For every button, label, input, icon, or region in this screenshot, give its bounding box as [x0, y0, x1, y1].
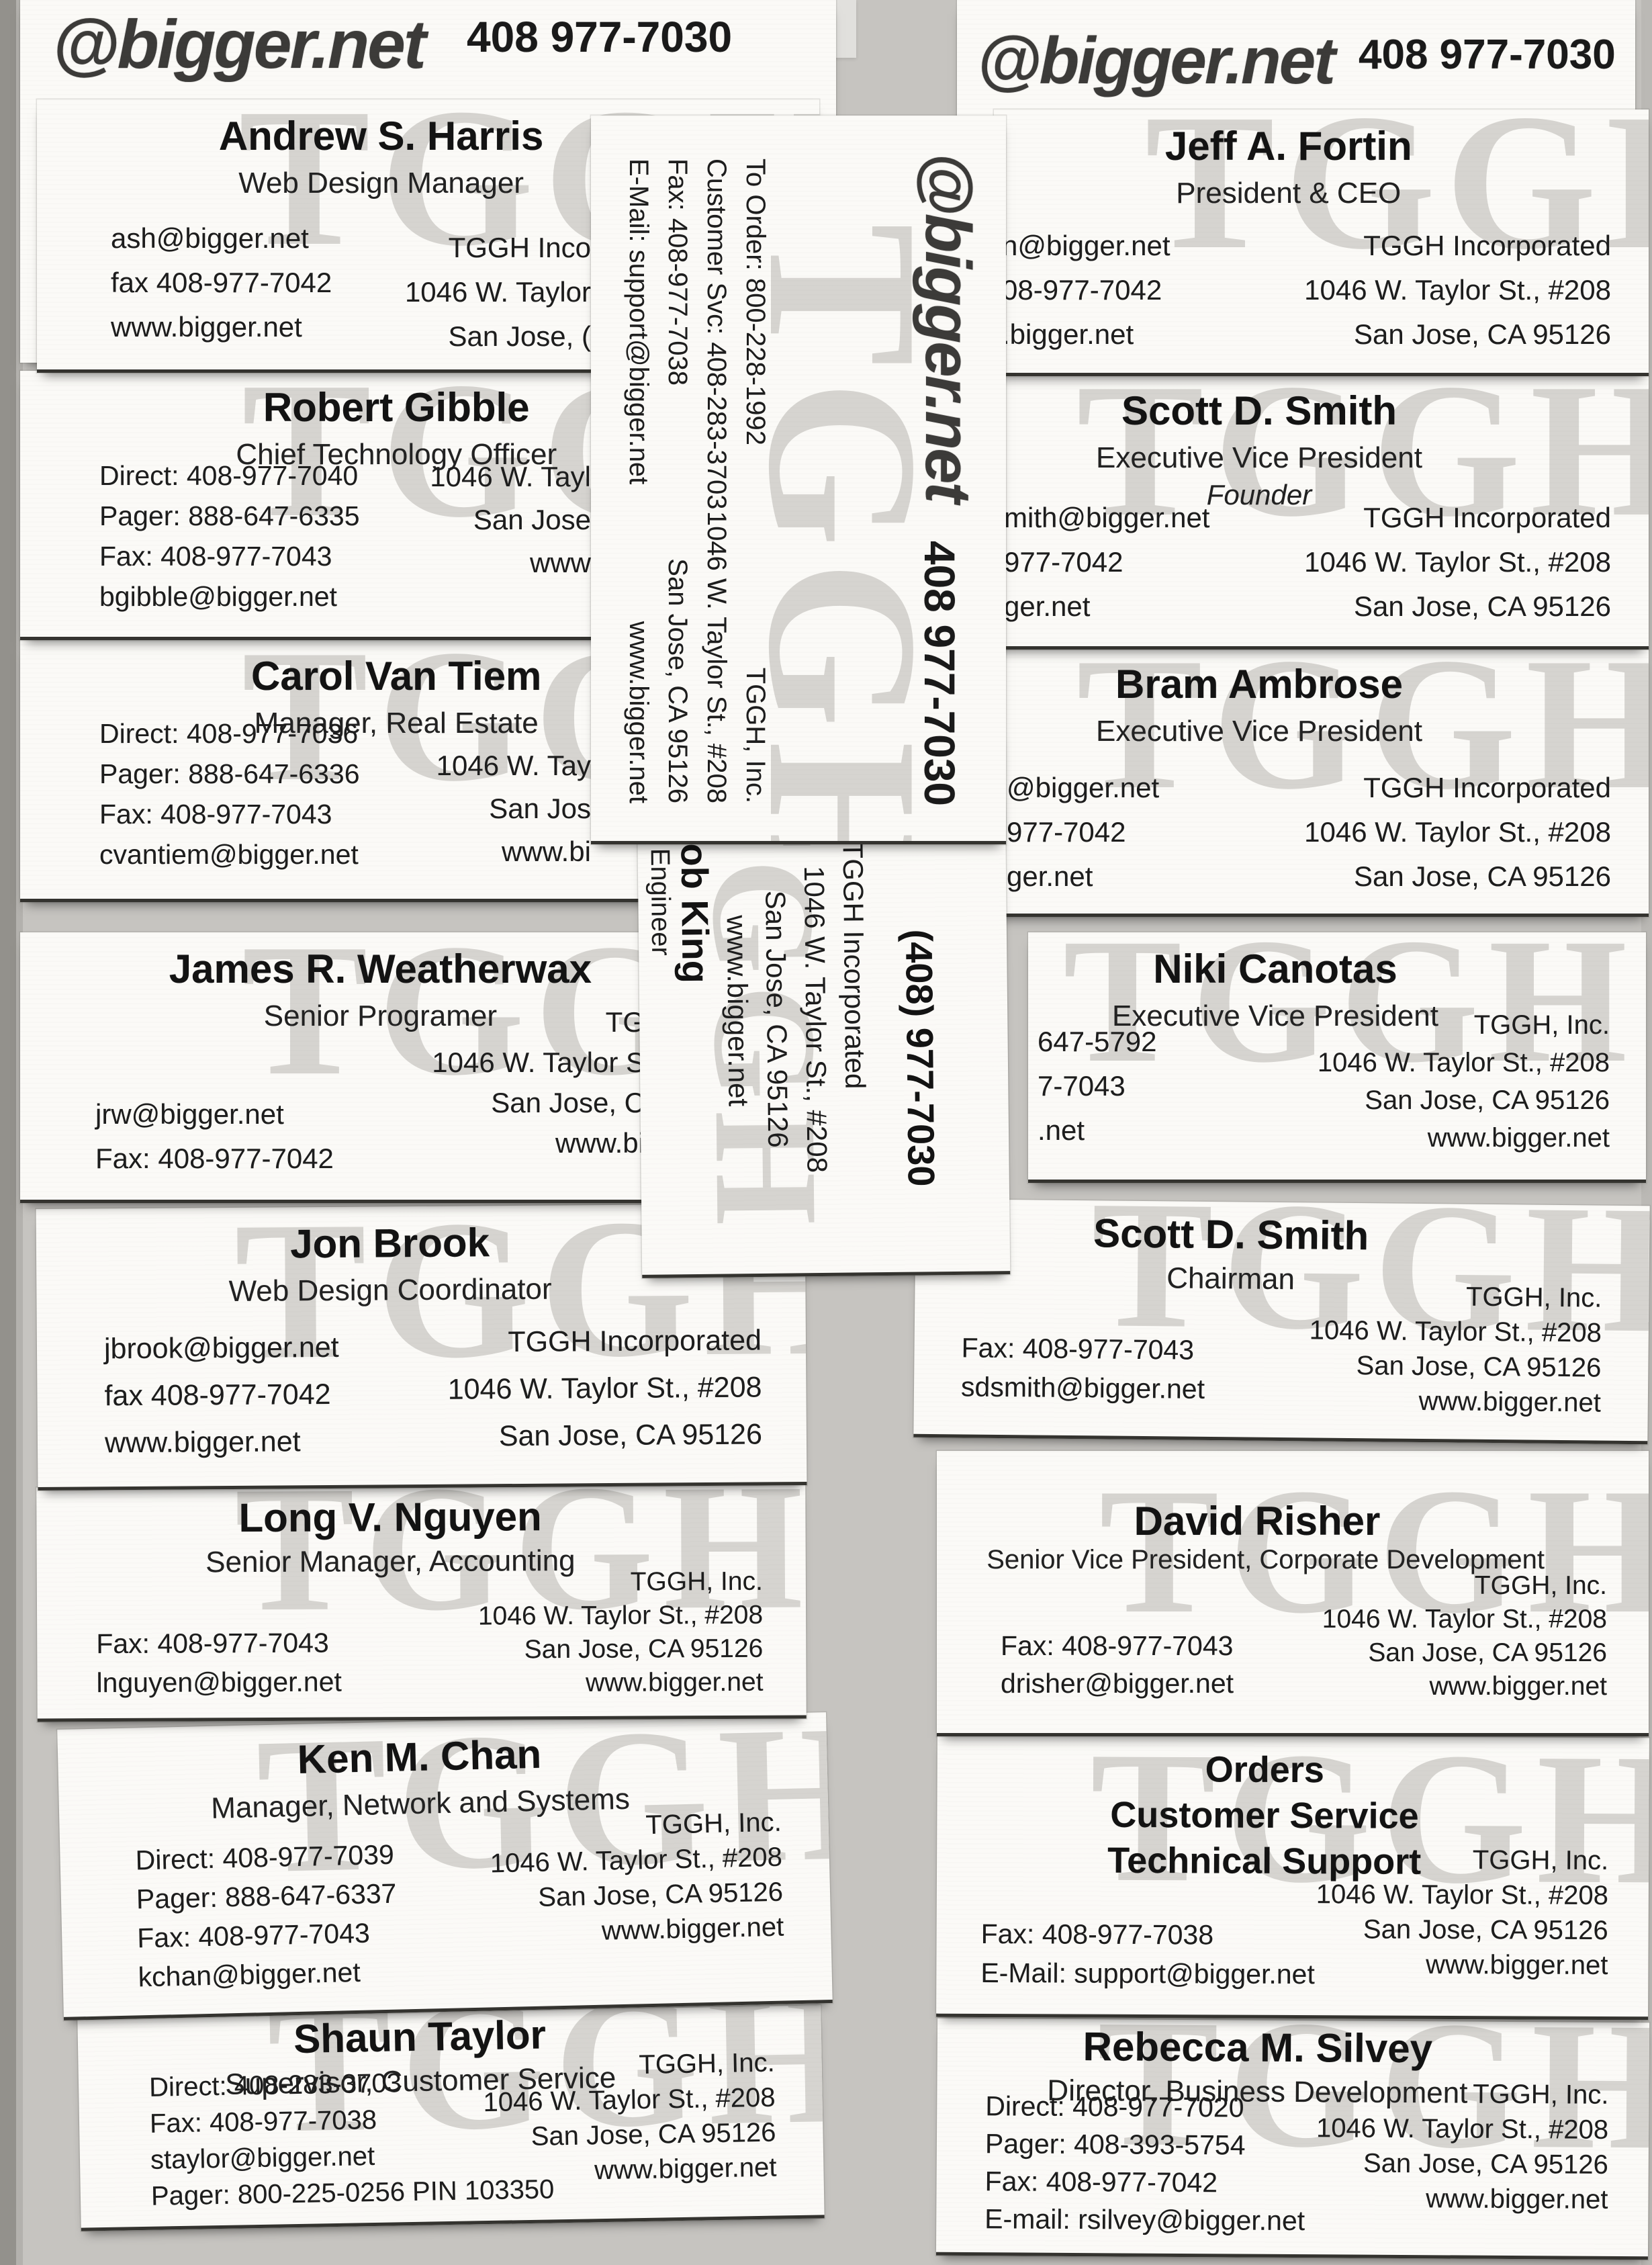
- bigger-net-logo: @bigger.net: [911, 152, 984, 501]
- address-line: TGGH Incorporated: [1304, 766, 1611, 810]
- address-lines: 1046 W. TaylSan Josewww: [430, 455, 591, 584]
- address-line: San Jose, CA 95126: [1309, 1347, 1602, 1385]
- address-line: San Jose, CA 95126: [478, 1632, 763, 1667]
- address-line: San Jose, CA 95126: [484, 2115, 776, 2156]
- contact-line: @bigger.net: [1007, 766, 1159, 810]
- address-line: 1046 W. Taylor St., #208: [1316, 1877, 1608, 1913]
- address-line: 1046 W. Taylor St., #208: [447, 1364, 762, 1413]
- address-lines: TGGH, Inc.1046 W. Taylor St., #208San Jo…: [489, 1805, 784, 1951]
- contact-lines: mith@bigger.net977-7042ger.net: [1004, 496, 1209, 629]
- contact-line: Fax: 408-977-7043: [99, 794, 360, 834]
- address-line: TGGH Incorporated: [447, 1317, 762, 1366]
- contact-line: E-Mail: support@bigger.net: [619, 159, 658, 510]
- card-title: Web Design Coordinator: [98, 1272, 683, 1309]
- address-line: TGGH, Inc.: [478, 1565, 763, 1600]
- contact-line: .bigger.net: [1002, 312, 1170, 357]
- contact-line: Direct: 408-977-7036: [99, 713, 360, 754]
- address-lines: TGGH, Inc.1046 W. Taylor St., #208San Jo…: [1316, 2076, 1608, 2217]
- card-name-line: Orders: [994, 1746, 1535, 1794]
- card-name: Jeff A. Fortin: [1040, 123, 1537, 169]
- contact-line: Customer Svc: 408-283-3703: [697, 159, 736, 510]
- address-line: 1046 W. Taylor St., #208: [1304, 810, 1611, 854]
- business-card-orders: TGGHOrdersCustomer ServiceTechnical Supp…: [936, 1735, 1649, 2020]
- rotated-card-inner: TGGH@bigger.net408 977-7030To Order: 800…: [591, 116, 1006, 841]
- contact-line: cvantiem@bigger.net: [99, 834, 360, 875]
- address-line: TGGH Inco: [405, 226, 591, 270]
- contact-line: Direct: 408-977-7040: [99, 455, 360, 496]
- contact-line: E-mail: rsilvey@bigger.net: [984, 2200, 1305, 2239]
- address-line: TGGH, Inc.: [736, 511, 775, 803]
- address-lines: TGGH Incorporated1046 W. Taylor St., #20…: [1304, 766, 1611, 899]
- address-lines: TGGH, Inc.1046 W. Taylor St., #208San Jo…: [482, 2045, 777, 2190]
- address-line: www: [430, 541, 591, 584]
- business-card-ambrose: TGGHBram AmbroseExecutive Vice President…: [977, 648, 1649, 917]
- card-name: Long V. Nguyen: [98, 1493, 682, 1542]
- contact-line: Pager: 408-393-5754: [985, 2125, 1305, 2164]
- card-title: Web Design Manager: [84, 167, 678, 200]
- contact-line: E-Mail: support@bigger.net: [980, 1953, 1315, 1994]
- contact-lines: ash@bigger.netfax 408-977-7042www.bigger…: [111, 216, 332, 349]
- address-line: TGGH, Inc.: [1322, 1569, 1607, 1603]
- business-card-canotas: TGGHNiki CanotasExecutive Vice President…: [1028, 932, 1646, 1183]
- address-lines: TGGH, Inc.1046 W. Taylor St., #208San Jo…: [1322, 1569, 1607, 1703]
- address-line: 1046 W. Taylor St., #208: [1316, 2111, 1608, 2147]
- card-name: Jon Brook: [97, 1218, 682, 1268]
- contact-lines: Direct: 408-977-7036Pager: 888-647-6336F…: [99, 713, 360, 875]
- address-line: TGGH, Inc.: [482, 2045, 775, 2086]
- card-name: Rebecca M. Silvey: [987, 2023, 1528, 2072]
- card-name: Scott D. Smith: [1004, 388, 1514, 434]
- address-line: San Jose, CA 95126: [759, 890, 794, 1147]
- business-card-risher: TGGHDavid RisherSenior Vice President, C…: [937, 1451, 1649, 1736]
- address-lines: TGGH Inco1046 W. TaylorSan Jose, (: [405, 226, 591, 359]
- address-line: www.bi: [437, 830, 591, 873]
- address-lines: TGGH, Inc.1046 W. Taylor St., #208San Jo…: [1309, 1278, 1602, 1420]
- address-line: 1046 W. Taylor St., #208: [1322, 1603, 1607, 1636]
- address-line: www.bi: [432, 1123, 645, 1163]
- bigger-net-logo: @bigger.net: [977, 23, 1334, 99]
- address-line: 1046 W. Taylor St., #208: [483, 2080, 776, 2121]
- contact-line: fax 408-977-7042: [111, 261, 332, 305]
- contact-lines: @bigger.net977-7042ger.net: [1007, 766, 1159, 899]
- card-phone: (408) 977-7030: [897, 929, 944, 1187]
- rotated-card-order-info: TGGH@bigger.net408 977-7030To Order: 800…: [591, 116, 1006, 844]
- contact-line: lnguyen@bigger.net: [96, 1662, 342, 1703]
- contact-line: 7-7043: [1038, 1064, 1157, 1108]
- contact-line: mith@bigger.net: [1004, 496, 1209, 540]
- business-card-smith_chair: TGGHScott D. SmithChairmanFax: 408-977-7…: [913, 1199, 1649, 1444]
- contact-lines: n@bigger.net08-977-7042.bigger.net: [1002, 224, 1170, 357]
- address-line: TGGH, Inc.: [1310, 1278, 1602, 1315]
- contact-line: Fax: 408-977-7043: [961, 1328, 1205, 1369]
- address-line: TG: [432, 1002, 645, 1042]
- contact-line: kchan@bigger.net: [138, 1952, 399, 1997]
- address-lines: TGGH, Inc.1046 W. Taylor St., #208San Jo…: [1318, 1006, 1610, 1157]
- business-card-staylor: TGGHShaun TaylorSupervisor, Customer Ser…: [77, 2005, 824, 2231]
- address-line: 1046 W. Taylor St., #208: [798, 866, 833, 1173]
- address-line: San Jose, CA 95126: [658, 511, 697, 803]
- address-line: www.bigger.net: [721, 915, 755, 1106]
- business-card-silvey: TGGHRebecca M. SilveyDirector, Business …: [936, 2018, 1649, 2260]
- address-line: www.bigger.net: [1322, 1670, 1607, 1703]
- address-line: 1046 W. Tay: [437, 744, 591, 787]
- address-line: www.bigger.net: [1316, 1947, 1608, 1983]
- contact-lines: Direct: 408-977-7020Pager: 408-393-5754F…: [984, 2087, 1305, 2239]
- card-name: Bram Ambrose: [1004, 661, 1514, 707]
- card-name-line: Customer Service: [994, 1791, 1535, 1840]
- address-lines: TGGH Incorporated1046 W. Taylor St., #20…: [1304, 224, 1611, 357]
- scanned-page: @bigger.net408 977-7030@bigger.net408 97…: [0, 0, 1652, 2265]
- contact-line: Fax: 408-977-7043: [99, 536, 360, 576]
- address-line: San Jose, CA 95126: [1316, 1912, 1608, 1948]
- contact-line: Fax: 408-977-7038: [981, 1914, 1316, 1955]
- contact-line: n@bigger.net: [1002, 224, 1170, 268]
- card-name: Scott D. Smith: [952, 1208, 1510, 1260]
- header-phone: 408 977-7030: [915, 541, 964, 806]
- address-lines: 1046 W. TaySan Joswww.bi: [437, 744, 591, 873]
- address-line: 1046 W. Taylor St., #208: [697, 511, 736, 803]
- contact-line: fax 408-977-7042: [104, 1371, 339, 1419]
- card-title: Executive Vice President: [1004, 715, 1514, 748]
- contact-line: 977-7042: [1007, 810, 1159, 854]
- address-line: TGGH, Inc.: [1316, 2076, 1608, 2113]
- contact-lines: Direct: 408-977-7039Pager: 888-647-6337F…: [135, 1835, 399, 1997]
- contact-lines: Fax: 408-977-7043drisher@bigger.net: [1001, 1627, 1234, 1702]
- contact-line: www.bigger.net: [111, 305, 332, 349]
- contact-line: ger.net: [1004, 584, 1209, 629]
- address-line: San Jose: [430, 498, 591, 541]
- address-line: TGGH, Inc.: [1316, 1842, 1608, 1878]
- address-line: TGGH, Inc.: [1318, 1006, 1610, 1044]
- card-name: Andrew S. Harris: [84, 113, 678, 159]
- address-line: www.bigger.net: [1318, 1119, 1610, 1157]
- address-line: 1046 W. Tayl: [430, 455, 591, 498]
- contact-lines: Fax: 408-977-7043lnguyen@bigger.net: [96, 1624, 342, 1703]
- contact-line: sdsmith@bigger.net: [961, 1367, 1205, 1408]
- address-line: San Jose, CA 95126: [1304, 854, 1611, 899]
- header-phone: 408 977-7030: [1359, 31, 1616, 79]
- address-line: 1046 W. Taylor St., #208: [1310, 1313, 1602, 1350]
- contact-line: jbrook@bigger.net: [104, 1324, 339, 1372]
- contact-line: bgibble@bigger.net: [99, 576, 360, 617]
- contact-line: www.bigger.net: [105, 1418, 340, 1466]
- contact-lines: 647-57927-7043.net: [1038, 1020, 1157, 1153]
- address-lines: TGGH Incorporated1046 W. Taylor St., #20…: [447, 1317, 762, 1460]
- contact-line: ash@bigger.net: [111, 216, 332, 261]
- contact-line: jrw@bigger.net: [95, 1092, 334, 1137]
- business-card-smith_evp: TGGHScott D. SmithExecutive Vice Preside…: [977, 374, 1649, 650]
- contact-lines: jbrook@bigger.netfax 408-977-7042www.big…: [104, 1324, 340, 1466]
- address-line: 1046 W. Taylor St., #208: [1304, 268, 1611, 312]
- address-line: San Jose, (: [405, 314, 591, 359]
- address-line: 1046 W. Taylor St., #208: [1304, 540, 1611, 584]
- address-line: www.bigger.net: [492, 1910, 784, 1951]
- contact-line: Fax: 408-977-7038: [658, 159, 697, 510]
- contact-line: Fax: 408-977-7043: [96, 1624, 342, 1664]
- address-lines: TG1046 W. Taylor SSan Jose, Cwww.bi: [432, 1002, 645, 1163]
- contact-line: 977-7042: [1004, 540, 1209, 584]
- address-line: www.bigger.net: [1316, 2180, 1608, 2217]
- contact-line: 647-5792: [1038, 1020, 1157, 1064]
- address-line: San Jos: [437, 787, 591, 830]
- contact-line: Direct: 408-977-7039: [135, 1835, 396, 1880]
- contact-line: Fax: 408-977-7043: [1001, 1627, 1234, 1664]
- card-name: Niki Canotas: [1040, 946, 1510, 992]
- bigger-net-logo: @bigger.net: [52, 5, 424, 84]
- address-line: www.bigger.net: [478, 1666, 763, 1701]
- address-line: www.bigger.net: [619, 511, 658, 803]
- address-line: San Jose, CA 95126: [1304, 584, 1611, 629]
- business-card-nguyen: TGGHLong V. NguyenSenior Manager, Accoun…: [36, 1484, 807, 1722]
- address-line: TGGH Incorporated: [836, 841, 871, 1089]
- address-lines: TGGH, Inc.1046 W. Taylor St., #208San Jo…: [478, 1565, 764, 1701]
- contact-line: .net: [1038, 1108, 1157, 1153]
- card-title: President & CEO: [1040, 177, 1537, 210]
- address-line: San Jose, CA 95126: [1318, 1081, 1610, 1119]
- address-line: 1046 W. Taylor St., #208: [478, 1599, 763, 1634]
- contact-line: Direct: 408-977-7020: [985, 2087, 1305, 2127]
- header-phone: 408 977-7030: [467, 12, 732, 62]
- address-line: TGGH Incorporated: [1304, 496, 1611, 540]
- address-line: San Jose, CA 95126: [1322, 1636, 1607, 1670]
- address-line: San Jose, CA 95126: [448, 1411, 762, 1460]
- address-lines: TGGH, Inc.1046 W. Taylor St., #208San Jo…: [1316, 1842, 1608, 1983]
- contact-line: Pager: 888-647-6336: [99, 754, 360, 794]
- contact-lines: jrw@bigger.netFax: 408-977-7042: [95, 1092, 334, 1181]
- card-name: David Risher: [986, 1498, 1528, 1544]
- contact-line: Fax: 408-977-7042: [984, 2162, 1305, 2202]
- business-card-fortin: TGGHJeff A. FortinPresident & CEOn@bigge…: [994, 109, 1649, 376]
- business-card-chan: TGGHKen M. ChanManager, Network and Syst…: [57, 1712, 833, 2020]
- address-line: www.bigger.net: [484, 2150, 777, 2190]
- address-line: www.bigger.net: [1309, 1382, 1602, 1420]
- card-name: James R. Weatherwax: [76, 946, 684, 992]
- contact-lines: Direct: 408-977-7040Pager: 888-647-6335F…: [99, 455, 360, 617]
- address-line: San Jose, CA 95126: [1304, 312, 1611, 357]
- contact-line: 08-977-7042: [1002, 268, 1170, 312]
- address-lines: TGGH, Inc.1046 W. Taylor St., #208San Jo…: [619, 511, 775, 803]
- address-line: San Jose, CA 95126: [1316, 2145, 1608, 2182]
- scanner-edge-left: [0, 0, 16, 2265]
- contact-lines: Fax: 408-977-7043sdsmith@bigger.net: [961, 1328, 1205, 1408]
- address-line: 1046 W. Taylor: [405, 270, 591, 314]
- address-line: 1046 W. Taylor St., #208: [1318, 1044, 1610, 1081]
- contact-line: drisher@bigger.net: [1001, 1664, 1234, 1702]
- contact-lines: To Order: 800-228-1992Customer Svc: 408-…: [619, 159, 775, 510]
- address-line: 1046 W. Taylor S: [432, 1042, 645, 1083]
- address-lines: TGGH Incorporated1046 W. Taylor St., #20…: [1304, 496, 1611, 629]
- card-title: Executive Vice President: [1004, 441, 1514, 475]
- address-line: San Jose, C: [432, 1083, 645, 1123]
- contact-line: Pager: 888-647-6337: [136, 1874, 397, 1919]
- contact-line: Fax: 408-977-7043: [137, 1913, 398, 1958]
- contact-line: ger.net: [1007, 854, 1159, 899]
- address-line: TGGH Incorporated: [1304, 224, 1611, 268]
- contact-line: Fax: 408-977-7042: [95, 1137, 334, 1181]
- contact-lines: Fax: 408-977-7038E-Mail: support@bigger.…: [980, 1914, 1315, 1994]
- contact-line: To Order: 800-228-1992: [736, 159, 775, 510]
- contact-line: Pager: 888-647-6335: [99, 496, 360, 536]
